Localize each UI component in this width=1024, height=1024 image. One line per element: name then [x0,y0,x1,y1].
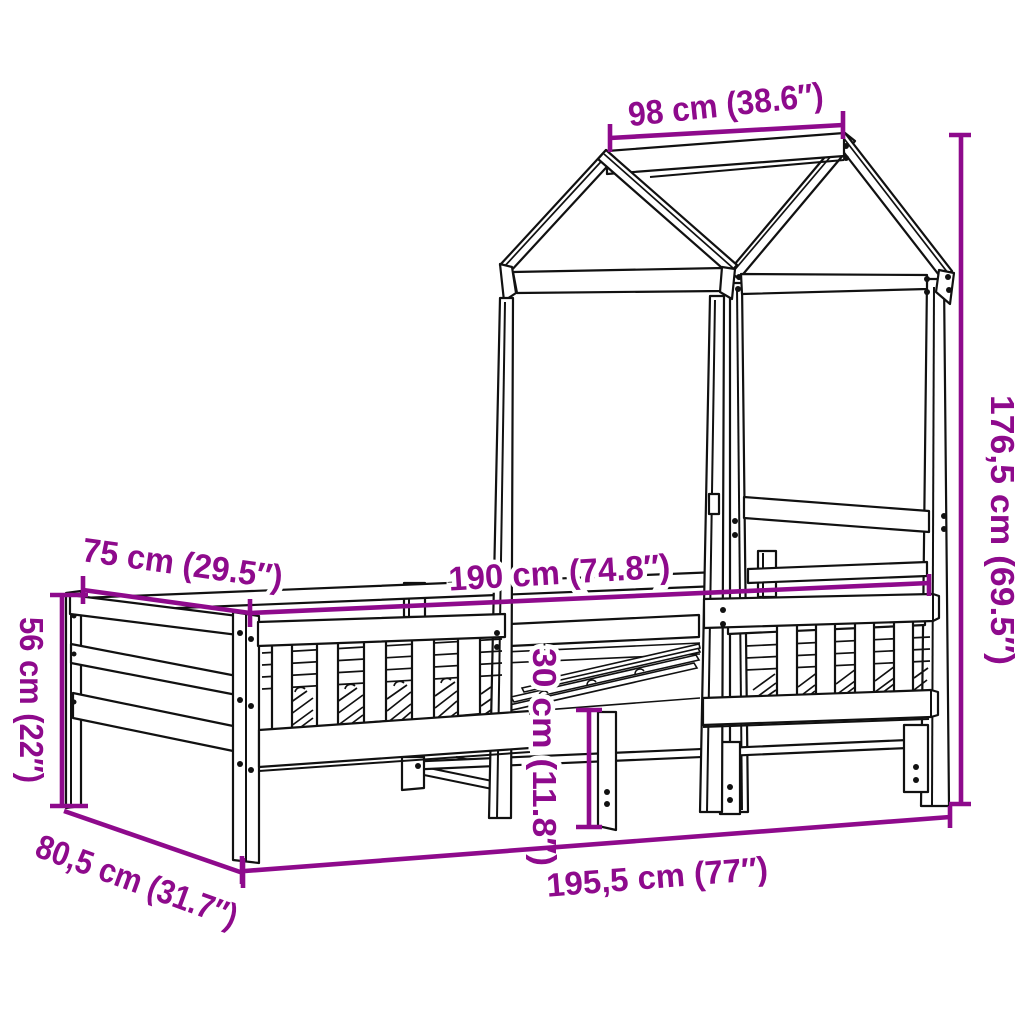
svg-text:30 cm (11.8″): 30 cm (11.8″) [526,648,563,866]
svg-text:56 cm (22″): 56 cm (22″) [13,617,50,783]
svg-text:176,5 cm (69.5″): 176,5 cm (69.5″) [984,395,1021,665]
